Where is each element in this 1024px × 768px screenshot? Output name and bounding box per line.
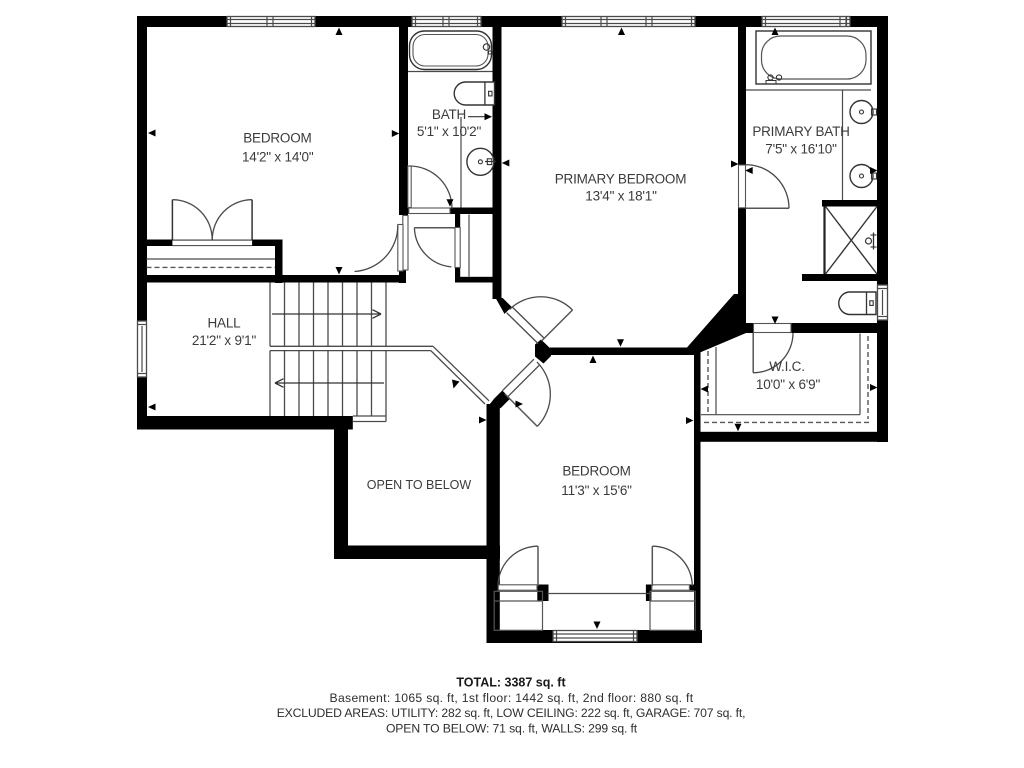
- svg-text:11'3" x 15'6": 11'3" x 15'6": [561, 483, 632, 498]
- svg-text:Basement: 1065 sq. ft, 1st flo: Basement: 1065 sq. ft, 1st floor: 1442 s…: [330, 691, 694, 705]
- svg-text:21'2" x 9'1": 21'2" x 9'1": [192, 333, 257, 348]
- svg-text:13'4" x 18'1": 13'4" x 18'1": [585, 189, 657, 204]
- svg-text:BEDROOM: BEDROOM: [243, 131, 311, 146]
- svg-text:EXCLUDED AREAS: UTILITY: 282 s: EXCLUDED AREAS: UTILITY: 282 sq. ft, LOW…: [277, 706, 746, 720]
- svg-text:10'0" x 6'9": 10'0" x 6'9": [756, 377, 821, 392]
- svg-text:5'1" x 10'2": 5'1" x 10'2": [417, 124, 482, 139]
- svg-text:HALL: HALL: [208, 316, 242, 331]
- svg-text:BATH: BATH: [432, 107, 466, 122]
- svg-text:PRIMARY BEDROOM: PRIMARY BEDROOM: [555, 171, 687, 186]
- svg-text:BEDROOM: BEDROOM: [562, 464, 630, 479]
- svg-text:W.I.C.: W.I.C.: [769, 359, 805, 374]
- svg-text:OPEN TO BELOW: OPEN TO BELOW: [367, 478, 472, 492]
- svg-text:OPEN TO BELOW: 71 sq. ft, WALL: OPEN TO BELOW: 71 sq. ft, WALLS: 299 sq.…: [386, 721, 638, 735]
- svg-text:7'5" x 16'10": 7'5" x 16'10": [765, 142, 837, 157]
- svg-text:14'2" x 14'0": 14'2" x 14'0": [242, 149, 314, 164]
- svg-text:TOTAL: 3387 sq. ft: TOTAL: 3387 sq. ft: [456, 675, 566, 689]
- svg-text:PRIMARY BATH: PRIMARY BATH: [752, 124, 849, 139]
